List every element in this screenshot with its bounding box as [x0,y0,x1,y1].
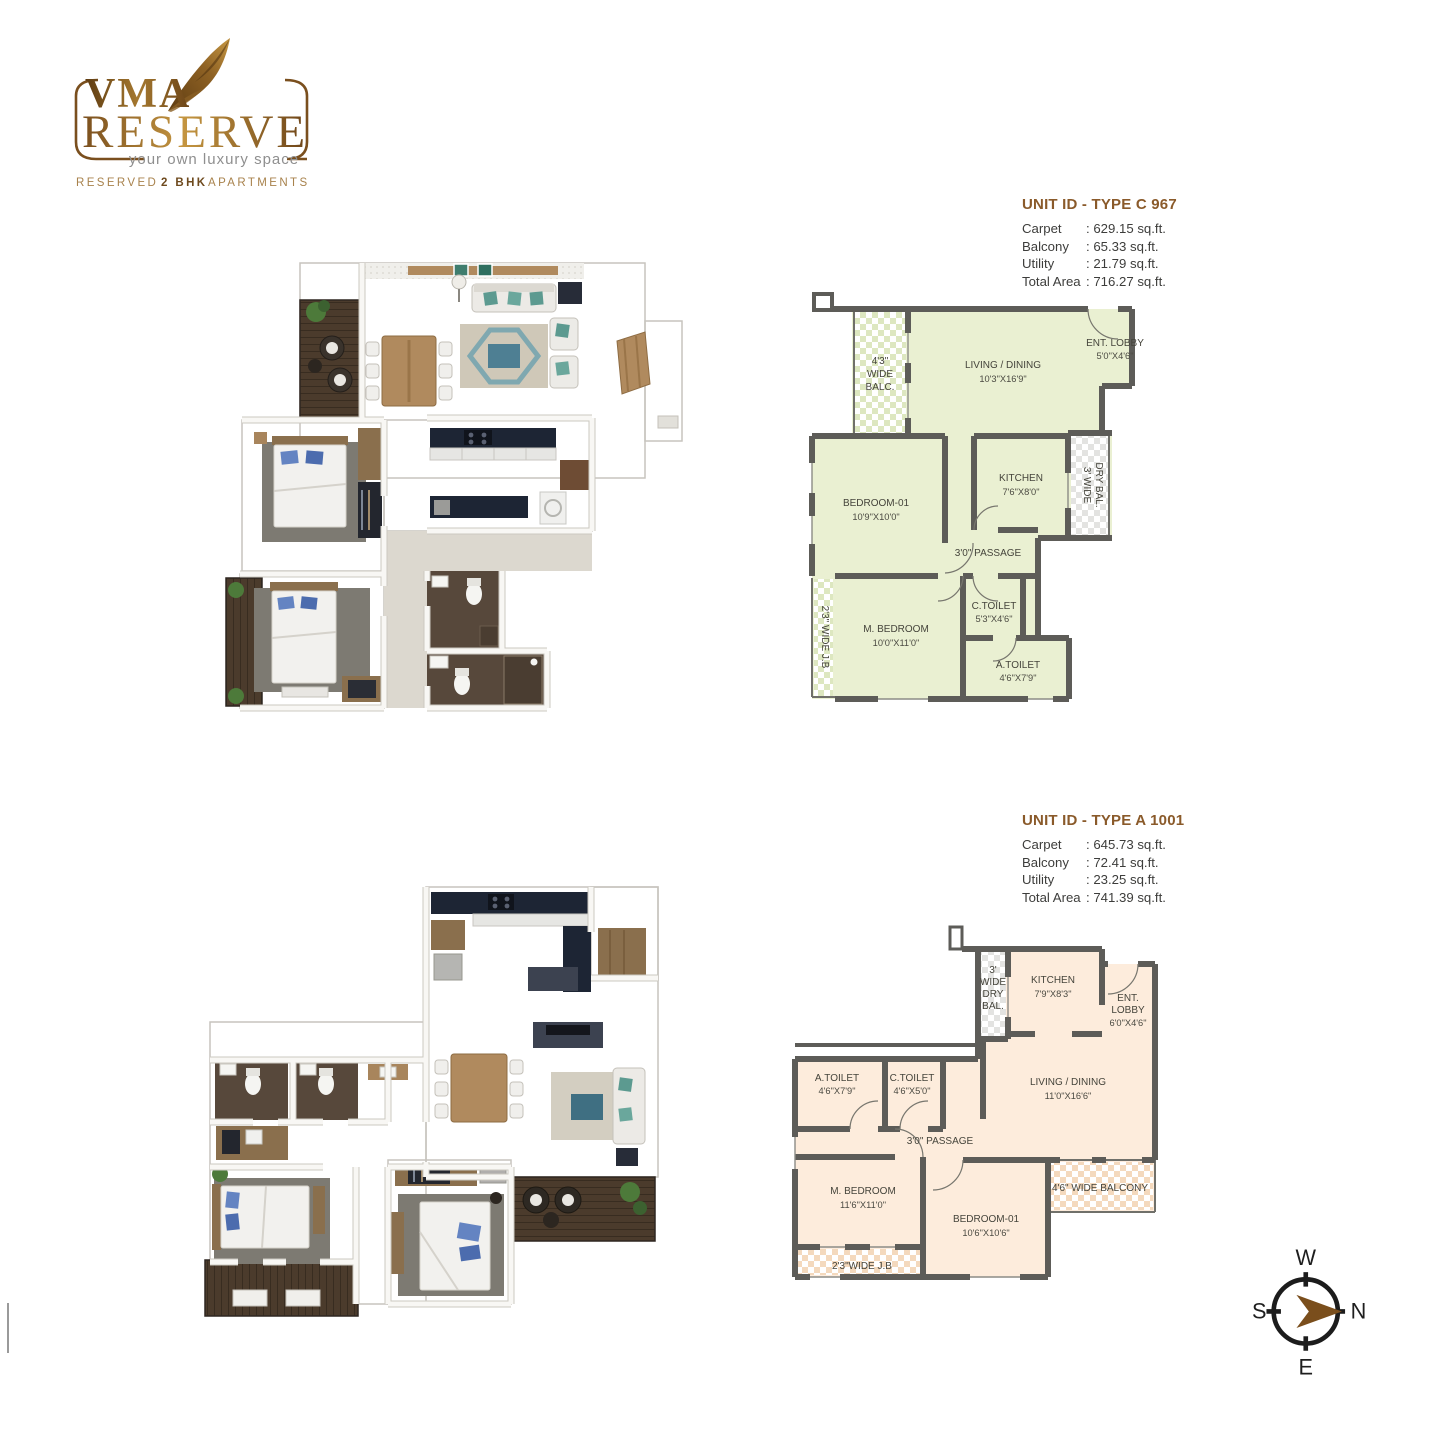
living-rug-a [551,1072,621,1140]
label-atoilet-dims: 4'6"X7'9" [999,673,1036,683]
label-kitchen: KITCHEN [999,473,1043,484]
label-kitchen-a: KITCHEN [1031,975,1075,986]
label-ctoilet-a-dims: 4'6"X5'0" [893,1086,930,1096]
logo-subtitle-2bhk: 2 BHK [161,177,208,189]
compass-n: N [1351,1299,1367,1324]
floorplan-3d-type-a [158,872,688,1397]
logo-subtitle: RESERVED 2 BHK APARTMENTS [76,177,310,189]
label-drybal2: DRY BAL. [1093,462,1104,507]
living-rug [460,324,548,388]
label-jb-a: 2'3"WIDE J.B [832,1261,892,1272]
label-kitchen-dims: 7'6"X8'0" [1002,487,1039,497]
label-balc3: BALC. [866,382,895,393]
armchairs [550,318,578,388]
label-living-a-dims: 11'0"X16'6" [1045,1091,1092,1101]
label-lobby-a2: LOBBY [1111,1005,1145,1016]
label-ctoilet-dims: 5'3"X4'6" [975,614,1012,624]
label-drybal: 3' WIDE [1081,467,1092,504]
label-atoilet-a-dims: 4'6"X7'9" [818,1086,855,1096]
label-kitchen-a-dims: 7'9"X8'3" [1034,989,1071,999]
sofa-a [613,1068,645,1166]
stat-carpet: Carpet: 629.15 sq.ft. [1022,220,1192,238]
stat-balcony-a: Balcony: 72.41 sq.ft. [1022,854,1192,872]
label-bedroom1-a-dims: 10'6"X10'6" [962,1228,1009,1238]
label-lobby-a-dims: 6'0"X4'6" [1109,1018,1146,1028]
passage-floor [384,531,592,571]
dining-table [366,336,452,406]
compass: W S E N [1238,1238,1388,1388]
label-mbedroom-a-dims: 11'6"X11'0" [840,1200,886,1210]
label-bedroom1: BEDROOM-01 [843,498,910,509]
label-living-dims: 10'3"X16'9" [979,374,1026,384]
logo-tagline: your own luxury space [129,151,299,168]
label-passage-a: 3'0" PASSAGE [907,1136,974,1147]
entry-3d-a [598,928,646,978]
floorplan-2d-type-c: 4'3" WIDE BALC. LIVING / DINING 10'3"X16… [788,288,1168,716]
label-lobby-a: ENT. [1117,993,1139,1004]
label-drybal-a2: WIDE [980,977,1006,988]
label-mbedroom: M. BEDROOM [863,624,929,635]
brochure-page: VMA RESERVE your own luxury space RESERV… [0,0,1440,1440]
floorplan-2d-type-a: 3' WIDE DRY BAL. KITCHEN 7'9"X8'3" ENT. … [790,907,1170,1302]
corridor-floor [384,571,427,708]
unit-info-type-c: UNIT ID - TYPE C 967 Carpet: 629.15 sq.f… [1022,196,1192,290]
entrance-door [617,332,678,428]
compass-s: S [1252,1299,1267,1324]
label-balc: 4'3" [872,356,889,367]
label-atoilet: A.TOILET [996,660,1040,671]
logo-subtitle-apartments: APARTMENTS [208,177,310,189]
label-mbedroom-a: M. BEDROOM [830,1186,896,1197]
label-balc2: WIDE [867,369,893,380]
label-ctoilet-a: C.TOILET [890,1073,935,1084]
label-mbedroom-dims: 10'0"X11'0" [873,638,920,648]
unit-title-type-a: UNIT ID - TYPE A 1001 [1022,812,1192,829]
kitchen-3d-a [431,892,591,992]
floorplan-3d-type-c [212,246,688,736]
floor-lamp [452,275,466,302]
label-balcony-a: 4'6" WIDE BALCONY [1052,1183,1148,1194]
compass-w: W [1296,1245,1317,1270]
compass-rose-icon [1266,1272,1345,1351]
label-bedroom1-a: BEDROOM-01 [953,1214,1020,1225]
label-atoilet-a: A.TOILET [815,1073,859,1084]
label-drybal-a3: DRY [983,989,1004,1000]
stat-carpet-a: Carpet: 645.73 sq.ft. [1022,836,1192,854]
accent-wall [362,263,584,279]
label-drybal-a: 3' [989,965,997,976]
kitchen-counters [430,428,592,524]
stat-utility: Utility: 21.79 sq.ft. [1022,255,1192,273]
label-living: LIVING / DINING [965,360,1041,371]
stat-balcony: Balcony: 65.33 sq.ft. [1022,238,1192,256]
stat-utility-a: Utility: 23.25 sq.ft. [1022,871,1192,889]
label-living-a: LIVING / DINING [1030,1077,1106,1088]
label-lobby: ENT. LOBBY [1086,338,1144,349]
label-drybal-a4: BAL. [982,1001,1004,1012]
dining-table-a [435,1054,523,1122]
label-jb: 2'3" WIDE J.B [819,606,830,669]
compass-e: E [1299,1355,1314,1380]
vma-reserve-logo: VMA RESERVE your own luxury space RESERV… [58,30,328,200]
crop-mark [7,1303,9,1353]
sofa [472,284,556,312]
jb-deck-a [205,1260,358,1316]
label-ctoilet: C.TOILET [972,601,1017,612]
logo-subtitle-reserved: RESERVED [76,177,158,189]
unit-info-type-a: UNIT ID - TYPE A 1001 Carpet: 645.73 sq.… [1022,812,1192,906]
bedroom1-3d-a [390,1164,506,1296]
duct-a [950,927,962,949]
unit-title-type-c: UNIT ID - TYPE C 967 [1022,196,1192,213]
bedroom1 [254,428,382,542]
stat-total-a: Total Area: 741.39 sq.ft. [1022,889,1192,907]
label-lobby-dims: 5'0"X4'6" [1096,351,1133,361]
label-passage: 3'0" PASSAGE [955,548,1022,559]
tv-console-a [533,1022,603,1048]
side-table [558,282,582,304]
label-bedroom1-dims: 10'9"X10'0" [852,512,899,522]
duct [814,294,832,310]
